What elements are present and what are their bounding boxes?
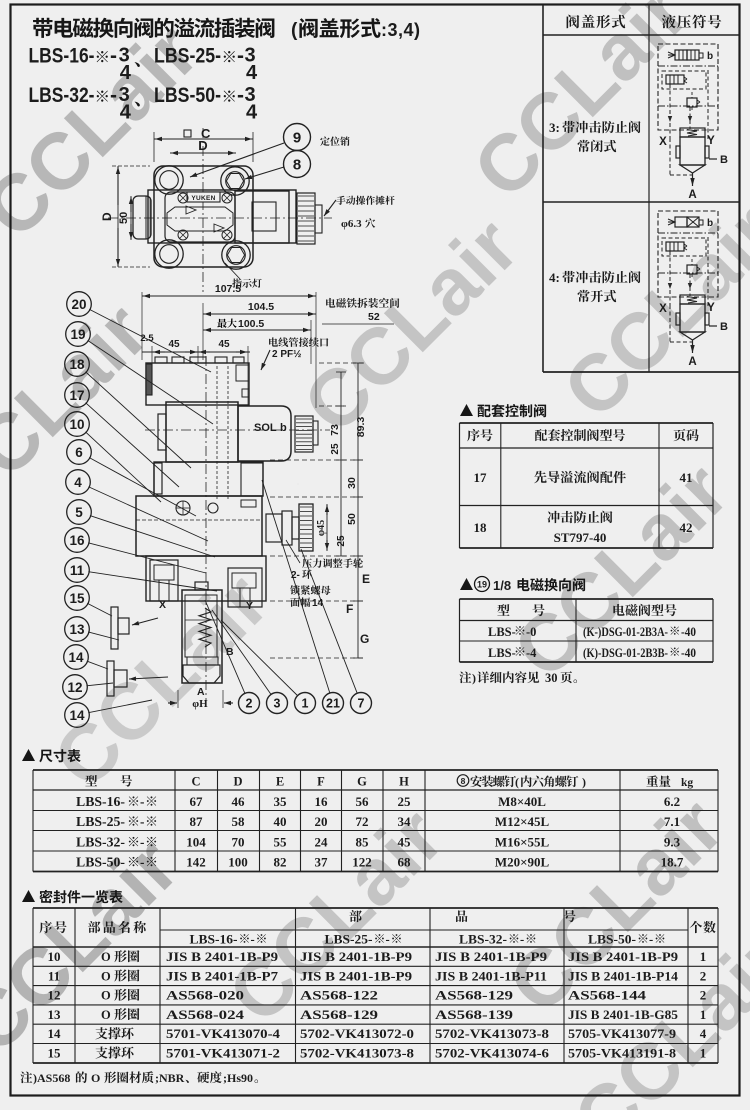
svg-text:YUKEN: YUKEN (191, 195, 215, 202)
svg-text:24: 24 (315, 835, 329, 850)
svg-text:17: 17 (474, 470, 488, 485)
svg-text:1: 1 (700, 1007, 707, 1022)
svg-text:ST797-40: ST797-40 (554, 530, 607, 545)
svg-text:25: 25 (336, 535, 347, 547)
svg-text:-: - (520, 933, 524, 947)
svg-text:5701-VK413070-4: 5701-VK413070-4 (166, 1026, 281, 1041)
svg-text:16: 16 (315, 794, 329, 809)
svg-text:LBS-32-: LBS-32- (29, 84, 95, 107)
svg-text:-40: -40 (681, 625, 696, 639)
svg-text:13: 13 (69, 622, 85, 637)
svg-text:14: 14 (48, 1026, 62, 1041)
svg-text:M12×45L: M12×45L (495, 814, 550, 829)
svg-text:B: B (720, 154, 728, 166)
svg-text:(K)-DSG-01-2B3B-: (K)-DSG-01-2B3B- (583, 646, 668, 660)
svg-text:-: - (237, 45, 244, 68)
svg-text:CCLair: CCLair (456, 0, 704, 215)
svg-text:2: 2 (246, 697, 253, 711)
svg-text:3: 3 (274, 697, 281, 711)
svg-text:): ) (582, 775, 586, 789)
svg-text:AS568-144: AS568-144 (568, 988, 647, 1003)
svg-text:4: 4 (74, 475, 82, 490)
svg-text:14: 14 (68, 650, 84, 665)
svg-text:30: 30 (346, 477, 358, 489)
svg-text:40: 40 (274, 814, 287, 829)
svg-text:11: 11 (70, 563, 85, 578)
svg-text:5705-VK413191-8: 5705-VK413191-8 (568, 1046, 677, 1061)
svg-text:10: 10 (48, 949, 61, 964)
svg-text:O: O (101, 989, 111, 1003)
svg-text:): ) (472, 671, 476, 685)
svg-text:9.3: 9.3 (664, 835, 681, 850)
svg-text:-: - (110, 45, 117, 68)
svg-text:50: 50 (346, 513, 358, 525)
svg-text:CCLair: CCLair (286, 201, 534, 449)
svg-text:4: 4 (120, 62, 132, 84)
svg-text:50: 50 (118, 212, 130, 224)
svg-text:JIS B 2401-1B-P9: JIS B 2401-1B-P9 (300, 968, 413, 983)
svg-text:M8×40L: M8×40L (498, 794, 546, 809)
svg-text:35: 35 (274, 794, 288, 809)
svg-text:5702-VK413073-8: 5702-VK413073-8 (300, 1046, 415, 1061)
svg-text:-: - (110, 84, 117, 107)
svg-text:O: O (91, 1071, 100, 1085)
svg-text:D: D (198, 138, 207, 153)
svg-text:LBS-: LBS- (488, 646, 516, 660)
svg-text:B: B (720, 321, 728, 333)
svg-text:5702-VK413073-8: 5702-VK413073-8 (435, 1026, 550, 1041)
svg-text:M20×90L: M20×90L (495, 855, 550, 870)
svg-text:X: X (659, 303, 667, 315)
svg-text:kg: kg (681, 777, 693, 789)
svg-text:82: 82 (274, 855, 287, 870)
svg-text:H: H (399, 775, 409, 789)
svg-text:89.3: 89.3 (355, 417, 367, 438)
svg-text:LBS-16-: LBS-16- (29, 45, 95, 68)
svg-text:8: 8 (461, 776, 466, 786)
svg-text:A: A (197, 686, 205, 698)
svg-text:25: 25 (398, 794, 412, 809)
svg-text:46: 46 (232, 794, 246, 809)
svg-text:LBS-50-: LBS-50- (588, 933, 636, 947)
svg-text:b: b (280, 422, 287, 434)
svg-text:4: 4 (246, 62, 258, 84)
svg-text:5: 5 (75, 505, 83, 520)
svg-text:LBS-25-: LBS-25- (76, 814, 125, 829)
svg-text:4: 4 (246, 102, 258, 124)
svg-text:LBS-50-: LBS-50- (76, 855, 125, 870)
svg-text:CCLair: CCLair (0, 286, 165, 534)
svg-text:6: 6 (75, 445, 83, 460)
svg-text:142: 142 (186, 855, 206, 870)
svg-text:87: 87 (190, 814, 204, 829)
svg-text:2.5: 2.5 (140, 333, 154, 344)
svg-text:5705-VK413077-9: 5705-VK413077-9 (568, 1026, 677, 1041)
svg-text:107.5: 107.5 (215, 283, 241, 295)
svg-text:(: ( (291, 20, 298, 41)
svg-text:12: 12 (67, 680, 82, 695)
svg-text:SOL: SOL (254, 422, 277, 434)
svg-text:1: 1 (302, 697, 309, 711)
svg-text:LBS-32-: LBS-32- (76, 835, 125, 850)
svg-text:1: 1 (700, 1046, 707, 1061)
svg-text:17: 17 (69, 388, 84, 403)
svg-text:O: O (101, 950, 111, 964)
svg-text:7: 7 (358, 697, 365, 711)
svg-text:JIS B 2401-1B-P9: JIS B 2401-1B-P9 (568, 949, 679, 964)
svg-text:4:: 4: (549, 270, 560, 285)
svg-text:45: 45 (168, 339, 180, 350)
svg-text:φH: φH (192, 698, 208, 710)
svg-text:JIS B 2401-1B-P9: JIS B 2401-1B-P9 (300, 949, 413, 964)
svg-text:20: 20 (71, 297, 86, 312)
svg-text:30: 30 (545, 671, 558, 685)
svg-text:67: 67 (190, 794, 204, 809)
svg-text:5701-VK413071-2: 5701-VK413071-2 (166, 1046, 280, 1061)
svg-text:18: 18 (69, 357, 85, 372)
svg-text:X: X (659, 136, 667, 148)
svg-text:58: 58 (232, 814, 246, 829)
svg-text:LBS-25-: LBS-25- (154, 45, 221, 68)
svg-text:20: 20 (315, 814, 328, 829)
svg-text:O: O (101, 1008, 111, 1022)
svg-text:AS568-129: AS568-129 (435, 988, 514, 1003)
svg-text:2 PF½: 2 PF½ (272, 349, 301, 360)
svg-text:15: 15 (48, 1046, 62, 1061)
svg-text:A: A (688, 356, 696, 368)
svg-text:4: 4 (120, 102, 132, 124)
svg-text:55: 55 (274, 835, 288, 850)
svg-text:LBS-50-: LBS-50- (154, 84, 221, 107)
svg-text:1: 1 (700, 949, 707, 964)
svg-text:JIS B 2401-1B-P9: JIS B 2401-1B-P9 (435, 949, 548, 964)
svg-text:5702-VK413074-6: 5702-VK413074-6 (435, 1046, 550, 1061)
svg-text:25: 25 (330, 443, 341, 455)
svg-text:AS568-139: AS568-139 (435, 1007, 514, 1022)
svg-text:Y: Y (707, 302, 715, 314)
svg-text:19: 19 (70, 327, 85, 342)
svg-text:-: - (140, 855, 144, 870)
svg-text:104: 104 (186, 835, 206, 850)
svg-text:7.1: 7.1 (664, 814, 680, 829)
svg-text:68: 68 (398, 855, 412, 870)
svg-text:-: - (140, 794, 144, 809)
svg-text:70: 70 (232, 835, 245, 850)
svg-text:F: F (317, 775, 325, 789)
svg-text:72: 72 (356, 814, 369, 829)
svg-text:4: 4 (700, 1026, 707, 1041)
svg-text:X: X (159, 599, 166, 611)
svg-text:(: ( (515, 775, 519, 789)
svg-text:45: 45 (398, 835, 412, 850)
svg-text:G: G (360, 632, 369, 646)
svg-text:16: 16 (69, 533, 85, 548)
svg-text:AS568-122: AS568-122 (300, 988, 378, 1003)
svg-text:2: 2 (700, 968, 707, 983)
svg-text:5702-VK413072-0: 5702-VK413072-0 (300, 1026, 414, 1041)
svg-text:41: 41 (680, 470, 693, 485)
svg-text:56: 56 (356, 794, 370, 809)
svg-text:-: - (140, 835, 144, 850)
svg-text:85: 85 (356, 835, 370, 850)
svg-text:19: 19 (477, 580, 487, 590)
svg-text:100.5: 100.5 (238, 318, 264, 330)
svg-text:-: - (251, 933, 255, 947)
svg-text:JIS B 2401-1B-P7: JIS B 2401-1B-P7 (166, 968, 279, 983)
svg-text:104.5: 104.5 (248, 301, 274, 313)
svg-text:LBS-16-: LBS-16- (76, 794, 125, 809)
svg-text:-: - (649, 933, 653, 947)
svg-text:14: 14 (69, 708, 85, 723)
svg-text:φ45: φ45 (316, 520, 327, 536)
svg-text:-: - (140, 814, 144, 829)
svg-text:14: 14 (312, 598, 324, 609)
svg-text:6.2: 6.2 (664, 794, 680, 809)
svg-text:42: 42 (680, 520, 693, 535)
svg-text:12: 12 (48, 988, 61, 1003)
svg-text:JIS B 2401-1B-P14: JIS B 2401-1B-P14 (568, 968, 679, 983)
svg-text:;Hs90: ;Hs90 (223, 1071, 253, 1085)
svg-text:11: 11 (48, 968, 60, 983)
svg-text:3:: 3: (549, 120, 560, 135)
svg-text:A: A (688, 189, 696, 201)
svg-text:LBS-25-: LBS-25- (325, 933, 373, 947)
svg-text:15: 15 (69, 591, 85, 606)
svg-text:F: F (346, 602, 353, 616)
svg-text:-4: -4 (526, 646, 537, 660)
svg-text:O: O (101, 969, 111, 983)
svg-text:2-: 2- (291, 570, 300, 581)
svg-text:122: 122 (352, 855, 372, 870)
svg-text:E: E (362, 572, 370, 586)
svg-text:34: 34 (398, 814, 412, 829)
svg-text:10: 10 (69, 417, 84, 432)
svg-text:M16×55L: M16×55L (495, 835, 550, 850)
svg-text:-40: -40 (681, 646, 696, 660)
svg-text:G: G (357, 775, 367, 789)
svg-text:21: 21 (326, 697, 340, 711)
svg-text:AS568-129: AS568-129 (300, 1007, 379, 1022)
svg-text:φ6.3: φ6.3 (341, 218, 362, 230)
svg-text:;NBR: ;NBR (155, 1071, 185, 1085)
svg-text:(K-)DSG-01-2B3A-: (K-)DSG-01-2B3A- (583, 625, 668, 639)
svg-text:D: D (233, 775, 242, 789)
svg-text:LBS-32-: LBS-32- (459, 933, 507, 947)
svg-text:Y: Y (707, 135, 715, 147)
svg-text:E: E (276, 775, 284, 789)
svg-text:LBS-: LBS- (488, 625, 516, 639)
svg-text:52: 52 (368, 311, 380, 323)
svg-text:100: 100 (228, 855, 248, 870)
svg-text:D: D (100, 212, 114, 221)
svg-text:b: b (707, 51, 713, 62)
svg-text:LBS-16-: LBS-16- (190, 933, 238, 947)
svg-text:)AS568: )AS568 (33, 1071, 70, 1085)
svg-text:AS568-020: AS568-020 (166, 988, 244, 1003)
svg-text:JIS B 2401-1B-G85: JIS B 2401-1B-G85 (568, 1007, 679, 1022)
svg-text:-0: -0 (526, 625, 536, 639)
svg-text:JIS B 2401-1B-P9: JIS B 2401-1B-P9 (166, 949, 279, 964)
svg-text:37: 37 (315, 855, 329, 870)
svg-text:13: 13 (48, 1007, 62, 1022)
svg-text::3,4): :3,4) (381, 20, 421, 40)
svg-text:18: 18 (474, 520, 488, 535)
svg-text:C: C (191, 775, 200, 789)
svg-text:-: - (237, 84, 244, 107)
svg-text:AS568-024: AS568-024 (166, 1007, 245, 1022)
svg-text:2: 2 (700, 988, 707, 1003)
svg-text:1/8: 1/8 (493, 578, 511, 593)
svg-text:JIS B 2401-1B-P11: JIS B 2401-1B-P11 (435, 968, 547, 983)
svg-text:-: - (386, 933, 390, 947)
svg-text:45: 45 (218, 339, 230, 350)
svg-text:9: 9 (293, 130, 301, 147)
svg-text:18.7: 18.7 (661, 855, 684, 870)
svg-text:8: 8 (293, 157, 301, 174)
svg-text:CCLair: CCLair (546, 186, 750, 434)
svg-text:73: 73 (329, 424, 341, 436)
svg-text:Y: Y (246, 600, 253, 612)
svg-text:b: b (707, 218, 713, 229)
